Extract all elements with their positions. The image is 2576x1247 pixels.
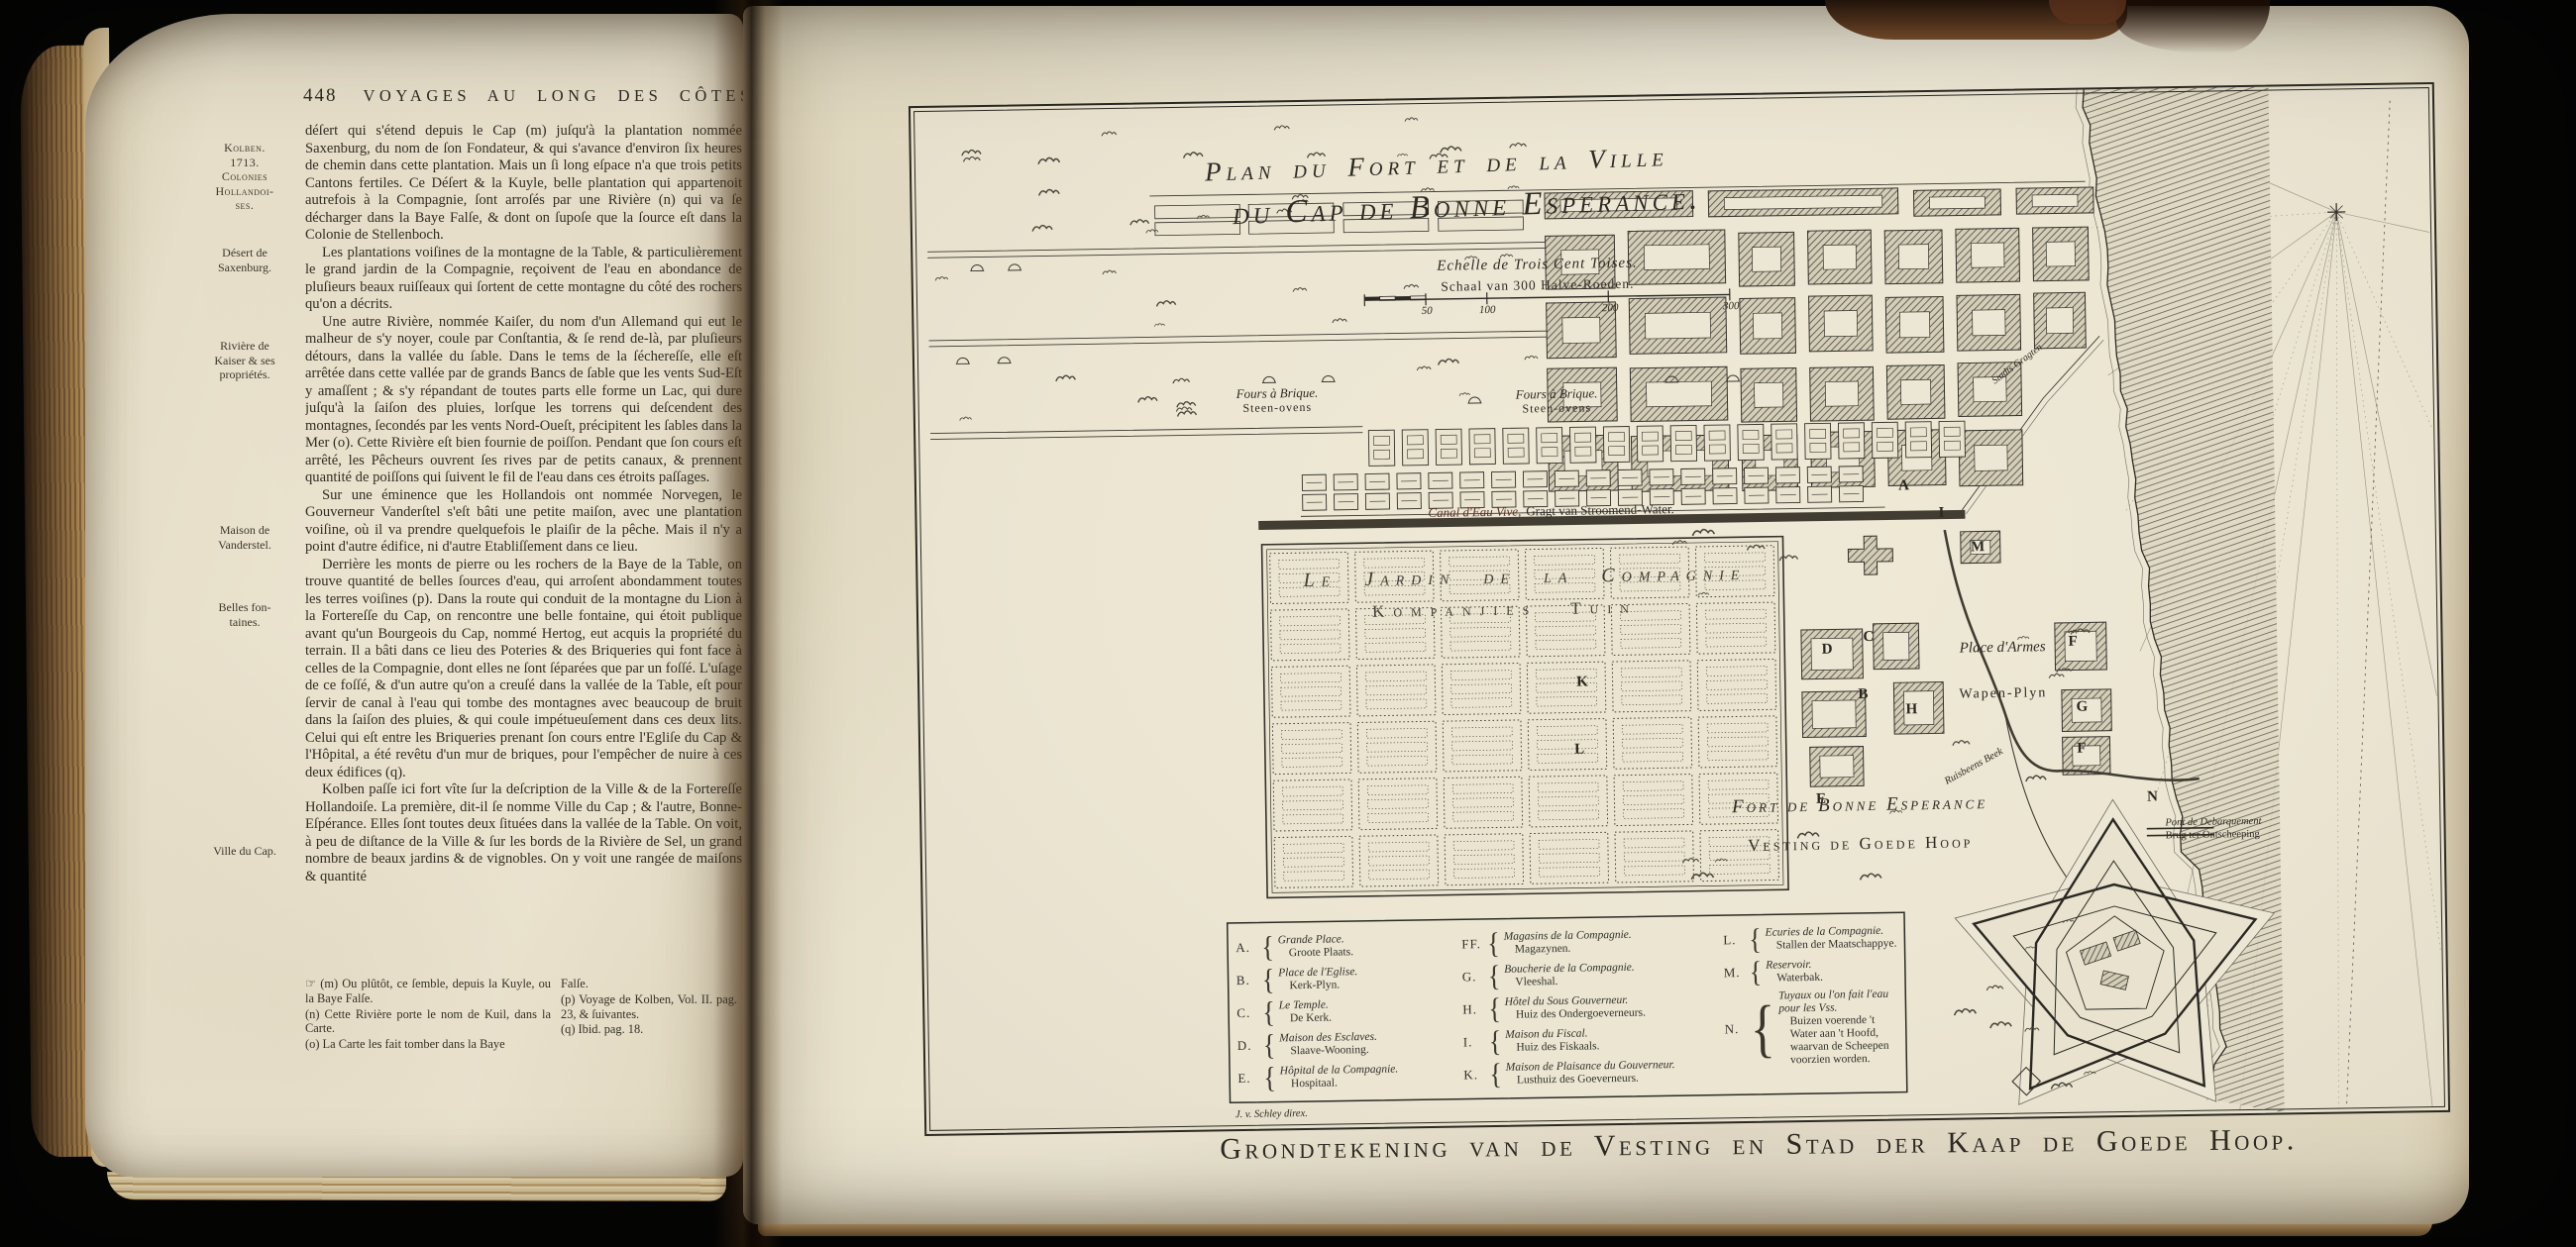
brace-glyph: {: [1749, 922, 1762, 957]
legend-entry: E.{Hôpital de la Compagnie.Hospitaal.: [1237, 1061, 1459, 1094]
place-d-armes-label-nl: Wapen-Plyn: [1916, 685, 2090, 704]
legend-entry: C.{Le Temple.De Kerk.: [1236, 995, 1458, 1029]
brace-glyph: {: [1750, 955, 1763, 989]
plan-letter: G: [2076, 699, 2088, 716]
scale-tick-label: 100: [1470, 304, 1504, 317]
scale-tick-label: 200: [1593, 302, 1627, 315]
right-map-page: Plan du Fort et de la Ville du Cap de Bo…: [743, 6, 2469, 1224]
brace-glyph: {: [1489, 1025, 1502, 1060]
paragraph: déſert qui s'étend depuis le Cap (m) juſ…: [305, 123, 742, 245]
plan-letter: K: [1576, 674, 1588, 690]
left-text-page: 448 VOYAGES AU LONG DES CÔTES Kolben. 17…: [85, 14, 743, 1177]
brace-glyph: {: [1488, 992, 1501, 1027]
legend-entry: H.{Hôtel du Sous Gouverneur.Huiz des Ond…: [1462, 990, 1718, 1024]
legend-entry: K.{Maison de Plaisance du Gouverneur.Lus…: [1463, 1056, 1719, 1090]
brace-glyph: {: [1262, 963, 1275, 997]
brick-kilns-label-west: Fours à Brique. Steen-ovens: [1190, 384, 1363, 417]
map-plate: Plan du Fort et de la Ville du Cap de Bo…: [909, 82, 2450, 1136]
running-title: VOYAGES AU LONG DES CÔTES: [364, 86, 754, 106]
plan-letter: B: [1858, 686, 1868, 703]
plan-letter: A: [1898, 477, 1909, 494]
paragraph: Derrière les monts de pierre ou les roch…: [305, 557, 742, 782]
brace-glyph: {: [1750, 992, 1775, 1066]
legend-column-1: A.{Grande Place.Groote Plaats. B.{Place …: [1235, 930, 1460, 1096]
paragraph: Les plantations voiſines de la montagne …: [305, 245, 742, 314]
legend-entry: D.{Maison des Esclaves.Slaave-Wooning.: [1237, 1028, 1459, 1062]
main-text-block: déſert qui s'étend depuis le Cap (m) juſ…: [305, 123, 742, 961]
fort-label-nl: Vesting de Goede Hoop: [1727, 832, 1994, 856]
plan-letter: H: [1905, 701, 1917, 718]
scale-tick-label: 50: [1410, 305, 1444, 318]
margin-note-belles-fontaines: Belles fon- taines.: [188, 600, 301, 629]
brace-glyph: {: [1488, 960, 1501, 994]
map-legend: A.{Grande Place.Groote Plaats. B.{Place …: [1228, 915, 1910, 1106]
brace-glyph: {: [1262, 995, 1275, 1030]
brace-glyph: {: [1487, 927, 1500, 962]
footnote-item: ☞ (m) Ou plûtôt, ce ſemble, depuis la Ku…: [305, 977, 551, 1006]
footnotes: ☞ (m) Ou plûtôt, ce ſemble, depuis la Ku…: [305, 977, 747, 1053]
footnote-item: (p) Voyage de Kolben, Vol. II. pag. 23, …: [561, 992, 737, 1022]
page-number: 448: [303, 85, 338, 107]
plan-letter: E: [1816, 791, 1826, 808]
margin-note-desert-saxenburg: Désert de Saxenburg.: [188, 246, 301, 274]
legend-column-2: FF.{Magasins de la Compagnie.Magazynen. …: [1461, 925, 1720, 1092]
place-d-armes-label-fr: Place d'Armes: [1916, 639, 2090, 659]
scale-tick-label: 300: [1714, 300, 1748, 313]
legend-entry: L.{Ecuries de la Compagnie.Stallen der M…: [1723, 923, 1901, 956]
paragraph: Une autre Rivière, nommée Kaiſer, du nom…: [305, 314, 742, 487]
dutch-bottom-title: Grondtekening van de Vesting en Stad der…: [1209, 1123, 2308, 1167]
paragraph: Sur une éminence que les Hollandois ont …: [305, 487, 742, 557]
page-header: 448 VOYAGES AU LONG DES CÔTES: [303, 85, 660, 107]
book-bottom-page-edge-right: [758, 1222, 2432, 1236]
plan-letter: D: [1822, 642, 1833, 659]
plan-letter: F: [2077, 741, 2086, 758]
brace-glyph: {: [1263, 1061, 1276, 1095]
margin-note-kolben: Kolben. 1713. Colonies Hollandoi- ses.: [188, 141, 301, 213]
engraver-credit: J. v. Schley direx.: [1235, 1108, 1308, 1120]
footnote-item: (q) Ibid. pag. 18.: [561, 1022, 737, 1037]
legend-entry: I.{Maison du Fiscal.Huiz des Fiskaals.: [1463, 1023, 1719, 1057]
damaged-cover-edge: [2049, 0, 2126, 24]
plan-letter: L: [1574, 742, 1584, 759]
landing-bridge-label: Pont de Debarquement Brug ter Ontscheepi…: [2165, 815, 2333, 843]
legend-entry: FF.{Magasins de la Compagnie.Magazynen.: [1461, 925, 1717, 959]
legend-entry: A.{Grande Place.Groote Plaats.: [1235, 930, 1457, 964]
plan-letter: I: [1938, 505, 1944, 522]
plan-letter: C: [1863, 629, 1874, 646]
brick-kilns-label-east: Fours à Brique. Steen-ovens: [1469, 385, 1643, 418]
book-gutter-shadow: [713, 0, 783, 1247]
legend-entry: M.{Reservoir.Waterbak.: [1724, 956, 1902, 988]
plan-letter: N: [2147, 788, 2158, 805]
footnote-item: (o) La Carte les fait tomber dans la Bay…: [305, 1037, 551, 1052]
brace-glyph: {: [1489, 1058, 1502, 1092]
paragraph: Kolben paſſe ici fort vîte ſur la deſcri…: [305, 781, 742, 885]
legend-column-3: L.{Ecuries de la Compagnie.Stallen der M…: [1723, 923, 1903, 1072]
margin-note-riviere-kaiser: Rivière de Kaiser & ses propriétés.: [188, 339, 301, 382]
legend-entry: B.{Place de l'Eglise.Kerk-Plyn.: [1236, 963, 1458, 996]
footnote-item: (n) Cette Rivière porte le nom de Kuil, …: [305, 1007, 551, 1037]
margin-note-maison-vanderstel: Maison de Vanderstel.: [188, 523, 301, 552]
margin-note-ville-du-cap: Ville du Cap.: [188, 844, 301, 859]
plan-letter: F: [2068, 634, 2077, 651]
footnote-column-left: ☞ (m) Ou plûtôt, ce ſemble, depuis la Ku…: [305, 977, 561, 1053]
legend-entry: N.{Tuyaux ou l'on fait l'eau pour les Vs…: [1724, 988, 1903, 1069]
footnote-column-right: Falſe. (p) Voyage de Kolben, Vol. II. pa…: [561, 977, 737, 1053]
brace-glyph: {: [1263, 1028, 1276, 1063]
photo-of-open-book: 448 VOYAGES AU LONG DES CÔTES Kolben. 17…: [0, 0, 2576, 1247]
legend-entry: G.{Boucherie de la Compagnie.Vleeshal.: [1462, 958, 1718, 991]
footnote-item: Falſe.: [561, 977, 737, 991]
brace-glyph: {: [1261, 930, 1274, 965]
plan-letter: M: [1971, 539, 1985, 556]
